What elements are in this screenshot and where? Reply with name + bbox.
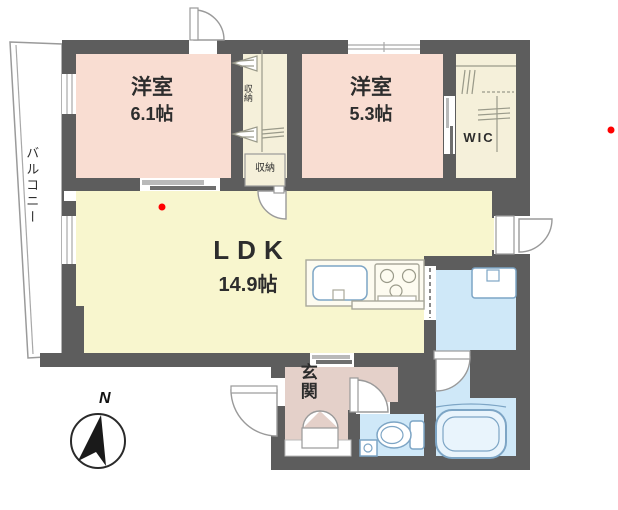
closet-small-label: 収納 — [245, 163, 285, 174]
floorplan-screenshot: バルコニー 洋室 6.1帖 洋室 5.3帖 LDK 14.9帖 WIC 収納 収… — [0, 0, 618, 510]
window-ldk-left — [62, 216, 76, 264]
washbasin-icon — [472, 268, 516, 298]
wic-floor — [448, 50, 518, 182]
door-opening-top — [189, 40, 217, 54]
bedroom1-size: 6.1帖 — [92, 105, 212, 125]
door-entrance — [231, 378, 285, 436]
balcony-label: バルコニー — [24, 146, 38, 226]
sliding-door-washroom — [424, 266, 436, 320]
sliding-door-bedroom2-wic — [444, 96, 455, 154]
bedroom1-label: 洋室 — [92, 76, 212, 99]
door-corridor-east — [494, 216, 552, 254]
ldk-size: 14.9帖 — [178, 274, 318, 296]
kitchen-sink-icon — [313, 266, 367, 300]
cursor-marker-2 — [608, 127, 615, 134]
counter-edge — [352, 301, 424, 309]
ldk-label: LDK — [178, 236, 318, 265]
door-top-bedroom1 — [190, 8, 224, 40]
bathtub-icon — [436, 404, 506, 458]
sliding-door-bedroom1-ldk — [140, 178, 220, 191]
stove-icon — [375, 264, 419, 303]
bedroom2-size: 5.3帖 — [311, 105, 431, 125]
window-bedroom2-top — [348, 40, 420, 54]
kitchen-counter-icon — [306, 260, 424, 309]
closet-tall-label: 収納 — [242, 84, 252, 102]
cursor-marker-1 — [159, 204, 166, 211]
compass-north-label: N — [99, 390, 111, 408]
window-small-left — [64, 191, 76, 201]
window-bedroom1-left — [62, 74, 76, 114]
wic-label: WIC — [449, 131, 509, 145]
compass-icon — [71, 414, 125, 468]
bedroom2-label: 洋室 — [311, 76, 431, 99]
genkan-label: 玄関 — [297, 363, 316, 401]
